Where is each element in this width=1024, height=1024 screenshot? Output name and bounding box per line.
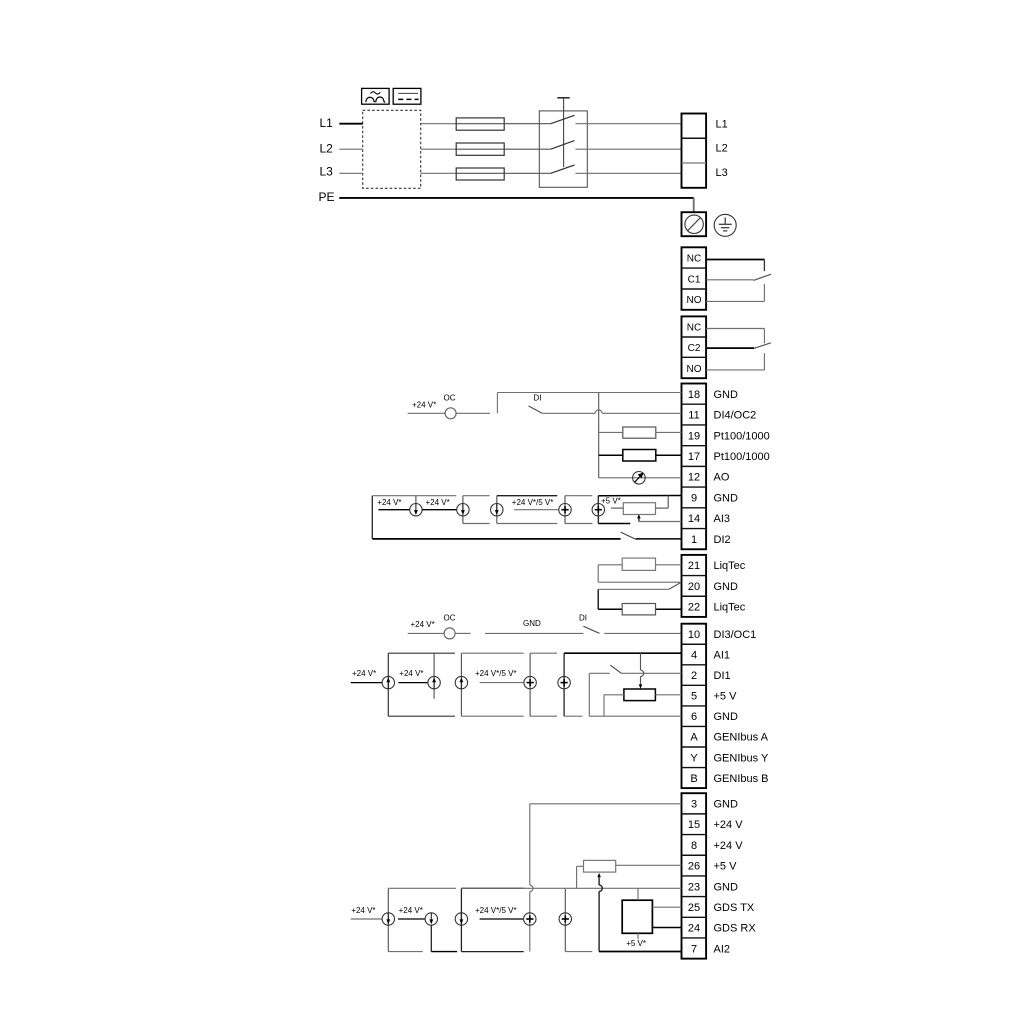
- svg-text:+24 V*: +24 V*: [399, 669, 423, 678]
- svg-text:+24 V*/5 V*: +24 V*/5 V*: [475, 906, 517, 915]
- svg-text:DI2: DI2: [714, 534, 731, 546]
- svg-text:DI1: DI1: [714, 670, 731, 682]
- svg-text:8: 8: [691, 840, 697, 852]
- svg-text:GDS TX: GDS TX: [714, 902, 755, 914]
- svg-text:OC: OC: [444, 614, 456, 623]
- svg-text:DI3/OC1: DI3/OC1: [714, 629, 757, 641]
- svg-text:GND: GND: [714, 581, 739, 593]
- svg-text:+24 V*: +24 V*: [411, 620, 435, 629]
- svg-text:23: 23: [688, 881, 700, 893]
- svg-text:DI: DI: [534, 393, 542, 402]
- svg-text:20: 20: [688, 581, 700, 593]
- svg-text:L2: L2: [320, 142, 334, 156]
- svg-text:LiqTec: LiqTec: [714, 560, 746, 572]
- svg-text:NO: NO: [687, 364, 702, 375]
- svg-text:L3: L3: [320, 164, 334, 178]
- svg-text:5: 5: [691, 691, 697, 703]
- svg-text:B: B: [690, 773, 697, 785]
- svg-text:NO: NO: [687, 295, 702, 306]
- svg-text:7: 7: [691, 943, 697, 955]
- svg-text:AI2: AI2: [714, 943, 731, 955]
- svg-text:GENIbus A: GENIbus A: [714, 732, 769, 744]
- svg-text:GDS RX: GDS RX: [714, 923, 757, 935]
- svg-text:24: 24: [688, 923, 700, 935]
- svg-text:GND: GND: [714, 492, 739, 504]
- svg-text:+24 V: +24 V: [714, 840, 744, 852]
- svg-text:GND: GND: [714, 799, 739, 811]
- svg-text:L2: L2: [716, 143, 728, 155]
- svg-text:AI1: AI1: [714, 650, 731, 662]
- svg-text:11: 11: [688, 410, 699, 422]
- svg-text:+24 V*: +24 V*: [399, 906, 423, 915]
- svg-text:+24 V*: +24 V*: [352, 669, 376, 678]
- svg-text:+24 V*: +24 V*: [412, 400, 436, 409]
- svg-text:3: 3: [691, 799, 697, 811]
- svg-text:NC: NC: [687, 323, 701, 334]
- svg-text:GND: GND: [714, 389, 739, 401]
- svg-text:GENIbus Y: GENIbus Y: [714, 752, 769, 764]
- svg-text:Y: Y: [690, 752, 698, 764]
- svg-text:A: A: [690, 732, 698, 744]
- svg-text:GND: GND: [714, 881, 739, 893]
- svg-text:+24 V*: +24 V*: [377, 498, 401, 507]
- svg-text:17: 17: [688, 451, 700, 463]
- svg-text:+24 V*/5 V*: +24 V*/5 V*: [512, 498, 554, 507]
- svg-text:19: 19: [688, 430, 700, 442]
- svg-text:C1: C1: [688, 274, 701, 285]
- svg-text:DI4/OC2: DI4/OC2: [714, 410, 757, 422]
- svg-text:+5 V: +5 V: [714, 691, 738, 703]
- svg-text:25: 25: [688, 902, 700, 914]
- svg-text:AO: AO: [714, 472, 730, 484]
- svg-text:L3: L3: [716, 167, 728, 179]
- svg-text:C2: C2: [688, 343, 701, 354]
- svg-text:NC: NC: [687, 254, 701, 265]
- svg-text:DI: DI: [579, 614, 587, 623]
- svg-text:+24 V*/5 V*: +24 V*/5 V*: [475, 669, 517, 678]
- svg-text:1: 1: [691, 534, 697, 546]
- svg-text:Pt100/1000: Pt100/1000: [714, 451, 770, 463]
- svg-text:26: 26: [688, 861, 700, 873]
- svg-text:GENIbus B: GENIbus B: [714, 773, 769, 785]
- svg-text:+24 V: +24 V: [714, 819, 744, 831]
- svg-text:AI3: AI3: [714, 513, 731, 525]
- svg-text:PE: PE: [319, 190, 335, 204]
- svg-text:18: 18: [688, 389, 700, 401]
- svg-text:6: 6: [691, 711, 697, 723]
- svg-text:21: 21: [688, 560, 700, 572]
- svg-text:22: 22: [688, 602, 700, 614]
- svg-text:15: 15: [688, 819, 700, 831]
- svg-text:LiqTec: LiqTec: [714, 602, 746, 614]
- svg-text:Pt100/1000: Pt100/1000: [714, 430, 770, 442]
- svg-text:GND: GND: [714, 711, 739, 723]
- svg-text:L1: L1: [716, 118, 728, 130]
- svg-text:L1: L1: [320, 116, 334, 130]
- svg-text:+5 V*: +5 V*: [626, 939, 646, 948]
- svg-text:OC: OC: [444, 393, 456, 402]
- svg-text:+5 V*: +5 V*: [601, 497, 621, 506]
- svg-text:+24 V*: +24 V*: [351, 906, 375, 915]
- svg-text:GND: GND: [523, 619, 541, 628]
- svg-text:4: 4: [691, 650, 697, 662]
- svg-text:9: 9: [691, 492, 697, 504]
- svg-text:10: 10: [688, 629, 700, 641]
- svg-text:12: 12: [688, 472, 700, 484]
- svg-text:14: 14: [688, 513, 700, 525]
- svg-text:2: 2: [691, 670, 697, 682]
- svg-text:+5 V: +5 V: [714, 861, 738, 873]
- svg-text:+24 V*: +24 V*: [426, 498, 450, 507]
